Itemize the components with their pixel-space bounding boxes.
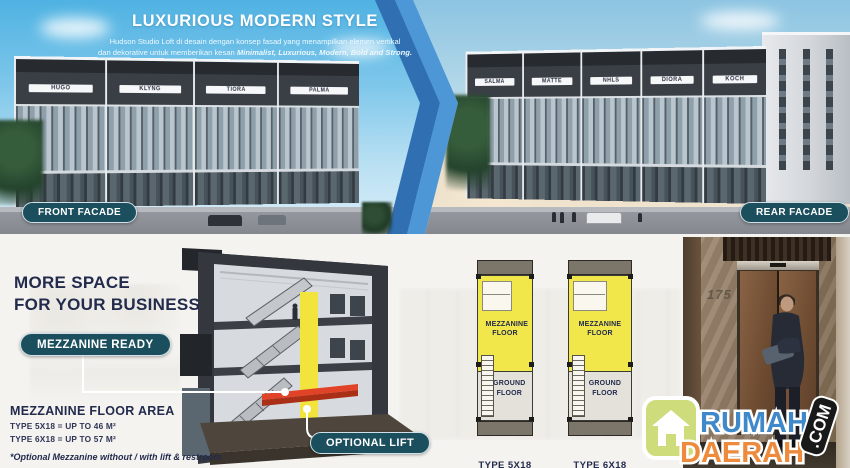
car [258, 215, 286, 225]
building-unit: KOCH [702, 46, 766, 204]
floor-area-note: *Optional Mezzanine without / with lift … [10, 452, 222, 462]
column [567, 362, 572, 367]
sign-band: SALMA [467, 67, 522, 98]
hero-description: Hudson Studio Loft di desain dengan kons… [60, 36, 450, 58]
rear-facade-render: SALMA MATTE NHLS [400, 0, 850, 234]
pedestrian [572, 212, 576, 222]
building-unit: TIORA [193, 59, 278, 206]
section-headline: MORE SPACE FOR YOUR BUSINESS [14, 272, 200, 316]
corner-facade [762, 32, 850, 204]
sign-band: TIORA [194, 75, 277, 106]
terrace-block [568, 421, 632, 436]
roof [467, 54, 522, 68]
windows [582, 96, 640, 167]
storefront [582, 166, 640, 201]
plan-rooms [482, 281, 512, 311]
windows [642, 96, 702, 168]
roof [582, 51, 640, 65]
mezzanine-floor-area-info: MEZZANINE FLOOR AREA TYPE 5X18 = UP TO 4… [10, 404, 222, 462]
roof [16, 59, 105, 73]
logo-word-rumah: RUMAH [700, 407, 808, 439]
logo-word-daerah: DAERAH [680, 437, 804, 468]
cloud [700, 12, 780, 30]
sign-band: KOCH [704, 63, 766, 96]
floor-area-title: MEZZANINE FLOOR AREA [10, 404, 222, 418]
building-unit: PALMA [277, 60, 359, 204]
terrace-block [477, 260, 533, 275]
roof [642, 50, 702, 65]
column [628, 274, 633, 279]
building-sign: PALMA [290, 87, 348, 95]
plan-rooms [573, 281, 607, 311]
ground-floor-label: GROUND FLOOR [490, 379, 529, 398]
pedestrian [560, 212, 564, 223]
building-sign: MATTE [532, 78, 573, 86]
unit-number: 175 [707, 287, 732, 302]
column [567, 274, 572, 279]
pedestrian [552, 212, 556, 222]
sign-band: PALMA [279, 76, 359, 106]
hero-copy: LUXURIOUS MODERN STYLE Hudson Studio Lof… [60, 12, 450, 58]
windows [279, 105, 359, 171]
terrace-block [477, 421, 533, 436]
floorplan-type-6x18: MEZZANINE FLOOR GROUND FLOOR TYPE 6X18 [568, 260, 632, 450]
building-sign: KOCH [713, 75, 758, 83]
rear-facade-badge: REAR FACADE [740, 202, 849, 223]
mezzanine-floor-label: MEZZANINE FLOOR [486, 320, 525, 339]
roof [279, 63, 359, 77]
building-sign: SALMA [475, 78, 514, 86]
storefront [279, 171, 359, 204]
car [208, 215, 242, 226]
details-section: MORE SPACE FOR YOUR BUSINESS [0, 234, 850, 468]
plan-body: MEZZANINE FLOOR GROUND FLOOR [568, 275, 632, 421]
ground-floor-label: GROUND FLOOR [583, 379, 628, 398]
headline-line2: FOR YOUR BUSINESS [14, 295, 200, 314]
rear-building: SALMA MATTE NHLS [466, 46, 766, 204]
plan-type-label: TYPE 6X18 [562, 460, 639, 468]
rumah-daerah-logo: RUMAH DAERAH .COM [638, 392, 850, 468]
sign-band: NHLS [582, 65, 640, 97]
roof [107, 60, 193, 74]
storefront [642, 167, 702, 203]
hero-title: LUXURIOUS MODERN STYLE [60, 12, 450, 31]
column [476, 274, 481, 279]
building-sign: TIORA [206, 86, 266, 94]
sign-band: HUGO [16, 72, 105, 104]
column [529, 274, 534, 279]
storefront [704, 168, 766, 204]
building-unit: KLYNG [105, 57, 193, 206]
roof [194, 62, 277, 76]
brochure-page: HUGO KLYNG TIORA [0, 0, 850, 468]
column [529, 362, 534, 367]
building-unit: MATTE [522, 50, 580, 201]
pedestrian [638, 213, 642, 222]
building-sign: NHLS [590, 77, 632, 85]
floorplan-type-5x18: MEZZANINE FLOOR GROUND FLOOR TYPE 5X18 [477, 260, 533, 450]
storefront [524, 166, 580, 201]
floor-area-row-5x18: TYPE 5X18 = UP TO 46 M² [10, 421, 222, 431]
building-sign: DIORA [651, 76, 694, 84]
hero-description-line1: Hudson Studio Loft di desain dengan kons… [110, 37, 401, 46]
building-unit: NHLS [580, 48, 640, 201]
mezzanine-ready-badge: MEZZANINE READY [20, 333, 171, 356]
windows [704, 95, 766, 168]
storefront [194, 172, 277, 206]
floor-indicator [770, 263, 786, 267]
hero-description-line2: dan dekorative untuk memberikan kesan [98, 48, 237, 57]
roof [704, 49, 766, 64]
optional-lift-badge: OPTIONAL LIFT [310, 432, 430, 454]
windows [107, 104, 193, 173]
windows [194, 105, 277, 173]
car [586, 212, 622, 224]
floor-area-row-6x18: TYPE 6X18 = UP TO 57 M² [10, 434, 222, 444]
bush [362, 202, 392, 234]
roof [524, 52, 580, 66]
plan-type-label: TYPE 5X18 [471, 460, 538, 468]
mezzanine-floor-label: MEZZANINE FLOOR [578, 320, 623, 339]
sign-band: DIORA [642, 64, 702, 96]
column [476, 362, 481, 367]
headline-line1: MORE SPACE [14, 273, 130, 292]
hero-section: HUGO KLYNG TIORA [0, 0, 850, 234]
sign-band: MATTE [524, 66, 580, 97]
louver-panel [723, 237, 831, 261]
building-sign: HUGO [29, 84, 93, 92]
column [628, 362, 633, 367]
tree [0, 120, 43, 205]
building-unit: DIORA [640, 47, 702, 203]
lift-indicator-bar [737, 261, 819, 270]
terrace-block [568, 260, 632, 275]
hero-description-emphasis: Minimalist, Luxurious, Modern, Bold and … [237, 48, 412, 57]
building-sign: KLYNG [119, 85, 181, 93]
front-building: HUGO KLYNG TIORA [14, 56, 359, 208]
sign-band: KLYNG [107, 74, 193, 105]
windows [524, 97, 580, 167]
plan-body: MEZZANINE FLOOR GROUND FLOOR [477, 275, 533, 421]
front-facade-badge: FRONT FACADE [22, 202, 137, 223]
